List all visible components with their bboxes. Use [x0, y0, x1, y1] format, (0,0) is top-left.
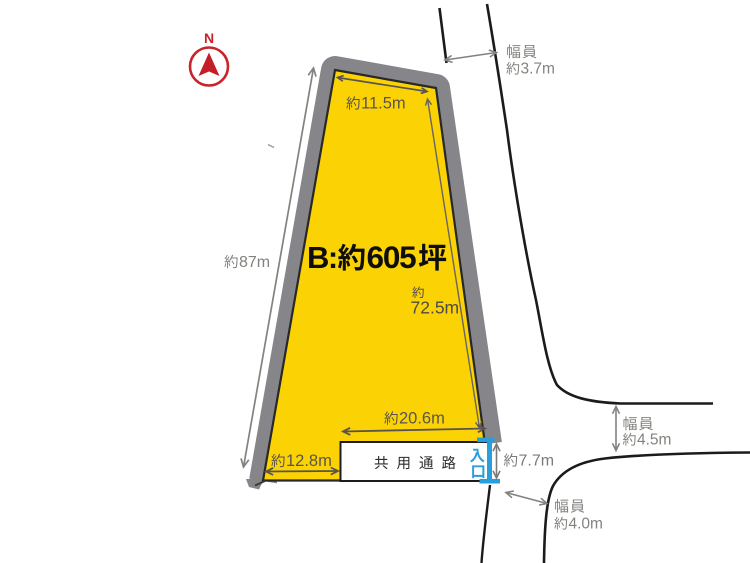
svg-text:12.8m: 12.8m [286, 452, 332, 470]
svg-text:B:: B: [307, 240, 337, 275]
svg-text:7.7m: 7.7m [519, 453, 555, 470]
svg-text:11.5m: 11.5m [361, 95, 406, 113]
svg-text:20.6m: 20.6m [399, 410, 445, 428]
svg-text:87m: 87m [239, 254, 270, 271]
svg-text:605: 605 [367, 239, 417, 275]
svg-text:4.5m: 4.5m [637, 432, 671, 449]
svg-text:N: N [204, 30, 214, 46]
svg-text:72.5m: 72.5m [411, 298, 460, 318]
svg-text:4.0m: 4.0m [569, 516, 603, 533]
svg-text:3.7m: 3.7m [521, 61, 555, 78]
